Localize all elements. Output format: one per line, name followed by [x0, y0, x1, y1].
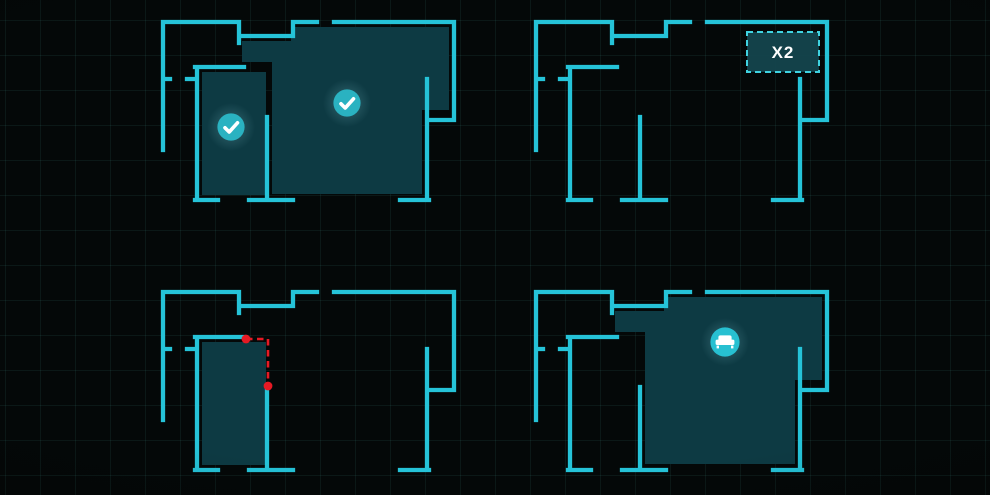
sofa-leg-right [731, 346, 733, 349]
floorplan-canvas: X2 [0, 0, 990, 495]
sofa-seat [716, 340, 735, 345]
panel-furniture-placement [536, 292, 827, 470]
floorplan-tutorial-scene: X2 [0, 0, 990, 495]
panel-wall-edit [163, 292, 454, 470]
sofa-marker[interactable] [701, 318, 749, 366]
marker-circle [217, 113, 244, 140]
panel-rooms-selected [163, 22, 454, 200]
wall-edit-handle[interactable] [264, 382, 273, 391]
panel-zone-multiplier: X2 [536, 22, 827, 200]
sofa-leg-left [717, 346, 719, 349]
zone-badge-label: X2 [772, 43, 795, 62]
zone-multiplier-badge[interactable]: X2 [747, 32, 819, 72]
check-marker[interactable] [207, 103, 255, 151]
marker-circle [333, 89, 360, 116]
room-fill-middle[interactable] [202, 342, 266, 465]
check-marker[interactable] [323, 79, 371, 127]
wall-edit-handle[interactable] [242, 335, 251, 344]
